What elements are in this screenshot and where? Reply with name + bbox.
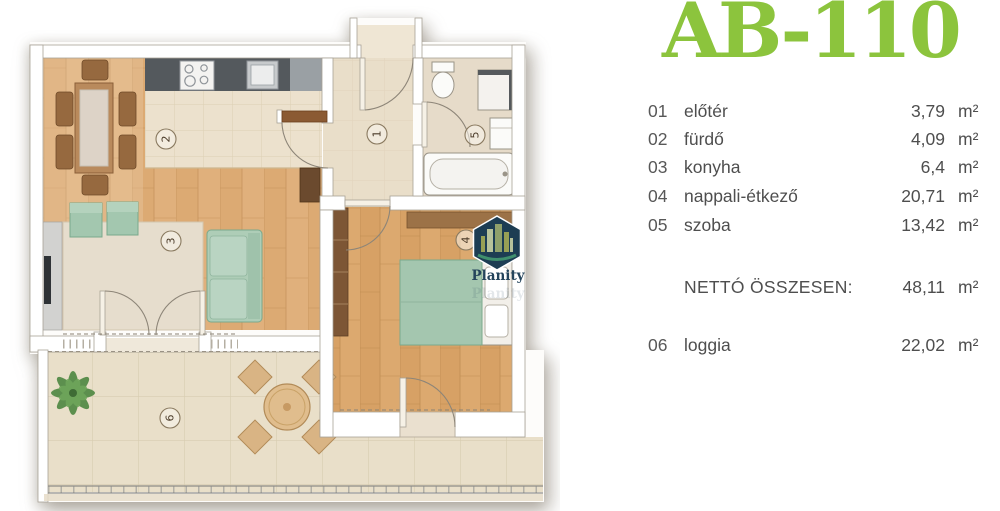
page: 1 2 3 4 5 6 xyxy=(0,0,1000,511)
legend-row: 01 előtér 3,79 m² xyxy=(648,101,984,123)
kitchen-floor xyxy=(145,91,322,168)
pillow xyxy=(485,305,508,337)
room-label-loggia: 6 xyxy=(160,408,180,428)
legend-total-row: NETTÓ ÖSSZESEN: 48,11 m² xyxy=(648,277,984,299)
room-name: szoba xyxy=(684,215,901,236)
room-name: loggia xyxy=(684,335,901,356)
area-unit: m² xyxy=(958,277,984,298)
watermark-text: Planity xyxy=(471,268,525,284)
room-name: konyha xyxy=(684,157,921,178)
room-label-bathroom: 5 xyxy=(465,125,485,145)
bathtub xyxy=(424,153,514,195)
room-number: 03 xyxy=(648,157,674,178)
kitchen-counter xyxy=(145,58,322,91)
svg-text:6: 6 xyxy=(164,415,177,422)
room-area: 3,79 xyxy=(911,101,945,122)
toilet xyxy=(432,62,454,98)
legend-row: 05 szoba 13,42 m² xyxy=(648,215,984,237)
svg-text:3: 3 xyxy=(165,238,178,245)
washing-machine xyxy=(490,118,514,149)
room-area: 6,4 xyxy=(921,157,945,178)
planity-logo: Planity Planity xyxy=(471,216,525,302)
plant xyxy=(51,371,95,415)
room-name: előtér xyxy=(684,101,911,122)
room-label-hall: 1 xyxy=(367,124,387,144)
room-area: 20,71 xyxy=(901,186,945,207)
loggia-door-threshold xyxy=(400,412,455,437)
legend-row: 02 fürdő 4,09 m² xyxy=(648,129,984,151)
floorplan: 1 2 3 4 5 6 xyxy=(0,0,560,511)
room-number: 05 xyxy=(648,215,674,236)
total-area: 48,11 xyxy=(903,277,946,298)
legend-row: 04 nappali-étkező 20,71 m² xyxy=(648,186,984,208)
room-name: nappali-étkező xyxy=(684,186,901,207)
area-unit: m² xyxy=(958,335,984,356)
area-unit: m² xyxy=(958,101,984,122)
room-number: 06 xyxy=(648,335,674,356)
room-area: 22,02 xyxy=(901,335,945,356)
room-label-kitchen: 2 xyxy=(156,129,176,149)
legend-row: 06 loggia 22,02 m² xyxy=(648,335,984,357)
hall-cabinet xyxy=(300,168,320,202)
svg-text:5: 5 xyxy=(469,132,482,139)
living-carpet xyxy=(63,222,203,330)
svg-text:4: 4 xyxy=(460,237,473,244)
area-unit: m² xyxy=(958,157,984,178)
area-unit: m² xyxy=(958,215,984,236)
room-number: 01 xyxy=(648,101,674,122)
apartment-title: AB-110 xyxy=(662,0,992,75)
room-area: 13,42 xyxy=(901,215,945,236)
room-number: 02 xyxy=(648,129,674,150)
shower xyxy=(478,70,514,110)
room-label-living: 3 xyxy=(161,231,181,251)
legend-row: 03 konyha 6,4 m² xyxy=(648,157,984,179)
stove xyxy=(180,61,214,90)
room-area: 4,09 xyxy=(911,129,945,150)
room-name: fürdő xyxy=(684,129,911,150)
tv-unit xyxy=(42,222,62,330)
room-number: 04 xyxy=(648,186,674,207)
kitchen-sink xyxy=(247,61,278,89)
svg-text:2: 2 xyxy=(160,136,173,143)
svg-text:1: 1 xyxy=(371,131,384,138)
area-unit: m² xyxy=(958,186,984,207)
sofa xyxy=(207,230,262,322)
area-unit: m² xyxy=(958,129,984,150)
watermark-ghost: Planity xyxy=(471,286,525,302)
total-label: NETTÓ ÖSSZESEN: xyxy=(684,277,903,298)
